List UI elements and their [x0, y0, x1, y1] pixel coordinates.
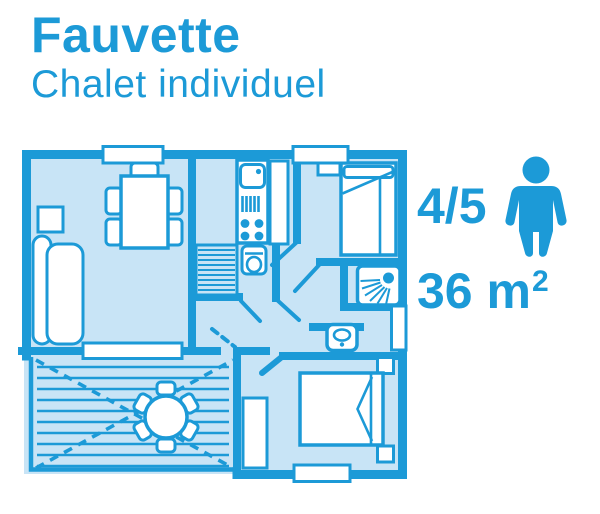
terrace-round-table	[145, 396, 187, 438]
shower-head-icon	[383, 273, 394, 284]
sofa-seat	[47, 244, 83, 344]
dining-table	[121, 176, 168, 248]
side-table	[38, 207, 63, 232]
sink-tap	[256, 169, 261, 174]
patio-door	[83, 343, 182, 359]
floor-plan	[0, 0, 600, 514]
window-bedroom-1	[293, 147, 348, 164]
shelf	[318, 163, 340, 175]
kitchen-sink	[241, 165, 265, 188]
nightstand-top	[378, 358, 394, 374]
window-bathroom	[392, 306, 407, 350]
toilet	[242, 246, 266, 274]
nightstand-bottom	[378, 446, 394, 462]
shower	[358, 266, 401, 305]
washbasin-tap	[340, 342, 344, 346]
area-label: 36 m2	[417, 262, 548, 320]
area-value: 36 m	[417, 263, 531, 319]
window-living	[103, 147, 163, 164]
window-bedroom-2	[294, 465, 350, 482]
area-exponent: 2	[532, 265, 549, 298]
chalet-card: Fauvette Chalet individuel	[0, 0, 600, 514]
fridge	[270, 161, 288, 244]
wc	[242, 246, 266, 274]
wardrobe	[243, 398, 267, 468]
shelf-unit-lines	[198, 250, 235, 290]
person-icon	[505, 157, 566, 257]
capacity-label: 4/5	[417, 177, 487, 235]
